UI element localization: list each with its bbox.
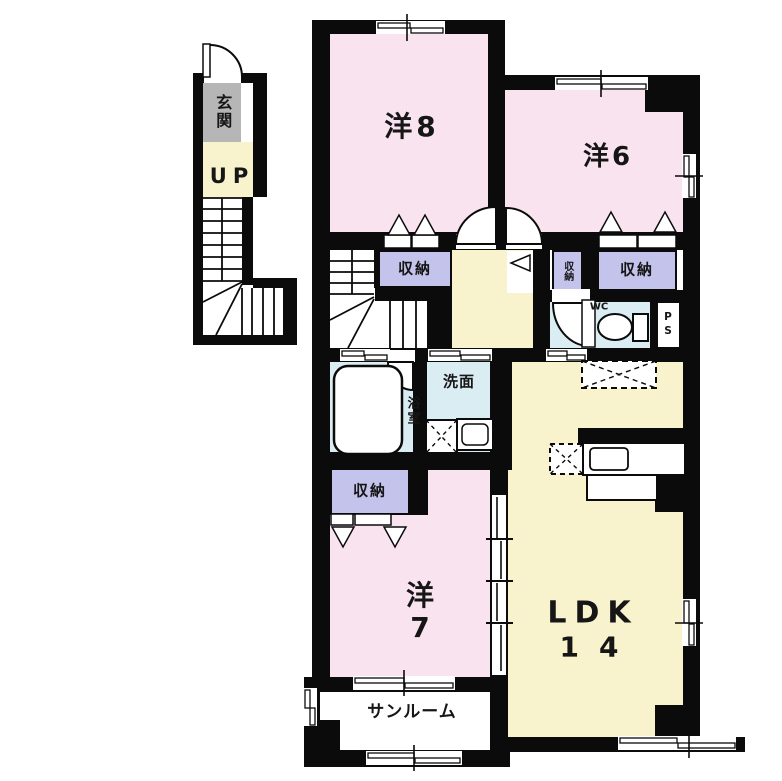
room7-label-line1: 洋 (406, 580, 434, 612)
sunroom-label: サンルーム (367, 703, 457, 723)
closet-west6-label: 収納 (620, 261, 654, 278)
room6-label: 洋6 (583, 143, 633, 173)
wall-entrance-bottom (193, 335, 297, 345)
room7-label-line2: 7 (406, 612, 434, 644)
wall-bedrooms-bottom (312, 232, 700, 250)
closet-by-stairs-label: 収納 (398, 260, 432, 277)
ldk-label-line2: 14 (547, 631, 650, 663)
wall-west7-bottom (312, 677, 508, 692)
floor-plan: 玄関 UP 洋8 洋6 収納 収納 収納 WC PS 洗面 浴室 収納 洋 7 … (0, 0, 782, 781)
up-label: UP (210, 164, 254, 188)
ps-label: PS (662, 311, 674, 339)
wall-hall-right (533, 250, 550, 362)
wall-entrance-right-stair (242, 197, 253, 285)
washroom-label: 洗面 (443, 373, 475, 390)
bathroom-label: 浴室 (404, 396, 419, 426)
room7-label: 洋 7 (406, 580, 434, 644)
wall-west8-west6-divider (488, 20, 505, 250)
wall-step-closet-divider (374, 250, 380, 288)
wall-main-right (683, 75, 700, 737)
room-bathroom (330, 362, 413, 452)
room8-label: 洋8 (384, 111, 439, 143)
wall-entrance-left (193, 73, 203, 345)
genkan-label: 玄関 (213, 94, 231, 130)
wall-kitchen-block (655, 470, 687, 512)
wall-sunroom-bottom (304, 750, 510, 767)
wall-stair-hall-divider (427, 298, 452, 362)
ldk-label-line1: LDK (547, 597, 638, 632)
outdoor-stair-upper (203, 197, 242, 282)
wall-ldk-corner (655, 705, 700, 745)
wall-kitchen-band (578, 428, 687, 445)
wall-closet7-right (410, 465, 428, 515)
wc-label: WC (590, 301, 608, 313)
closet-west7-label: 収納 (353, 482, 387, 499)
wall-west7-ldk-divider (490, 466, 508, 767)
closet-alcove (507, 251, 534, 293)
wall-west8-top (312, 20, 505, 34)
wall-west6-notch (645, 90, 683, 112)
wall-west6-top (503, 75, 700, 90)
wall-entrance-right-upper (253, 73, 267, 197)
outdoor-stair-lower (203, 282, 283, 335)
wall-ldk-bottom (508, 737, 745, 752)
room-ldk (508, 362, 683, 737)
ldk-label: LDK 14 (547, 597, 630, 664)
closet-hall-small-label: 収納 (561, 261, 573, 281)
